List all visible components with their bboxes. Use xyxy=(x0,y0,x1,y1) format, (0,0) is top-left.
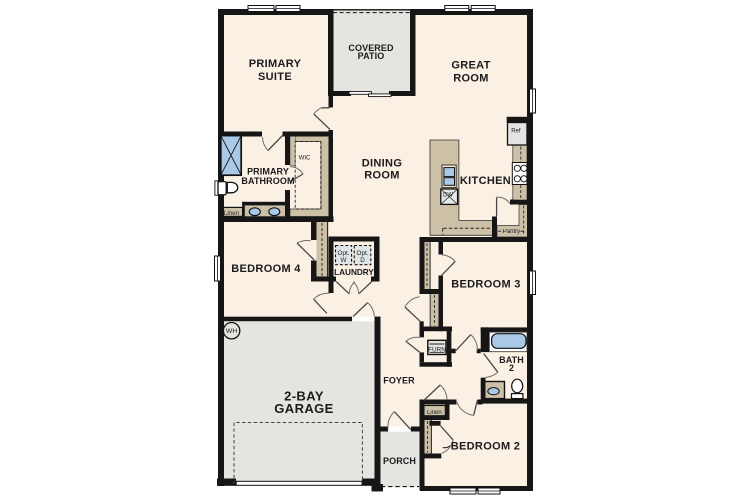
svg-text:DW: DW xyxy=(443,192,453,198)
svg-text:WH: WH xyxy=(226,328,237,335)
svg-text:BEDROOM 2: BEDROOM 2 xyxy=(451,441,521,453)
svg-text:DINING: DINING xyxy=(362,158,402,170)
svg-text:FOYER: FOYER xyxy=(383,375,415,385)
svg-text:PORCH: PORCH xyxy=(383,456,416,466)
svg-text:FURN: FURN xyxy=(428,347,446,354)
svg-text:SUITE: SUITE xyxy=(258,71,292,83)
svg-text:Pantry: Pantry xyxy=(503,229,520,235)
svg-text:ROOM: ROOM xyxy=(453,73,489,85)
svg-text:GREAT: GREAT xyxy=(451,60,490,72)
svg-text:BATHROOM: BATHROOM xyxy=(241,176,294,186)
svg-text:Linen: Linen xyxy=(427,410,442,416)
svg-text:Opt.: Opt. xyxy=(338,250,350,257)
svg-text:W: W xyxy=(341,257,347,264)
svg-text:PATIO: PATIO xyxy=(358,51,385,61)
svg-text:KITCHEN: KITCHEN xyxy=(460,175,511,187)
svg-text:Ref: Ref xyxy=(511,129,521,135)
svg-text:BEDROOM 3: BEDROOM 3 xyxy=(451,279,521,291)
svg-text:WIC: WIC xyxy=(299,156,311,162)
svg-text:ROOM: ROOM xyxy=(364,170,400,182)
svg-text:GARAGE: GARAGE xyxy=(274,401,333,416)
svg-text:LAUNDRY: LAUNDRY xyxy=(334,268,374,277)
svg-text:D: D xyxy=(360,257,365,264)
svg-text:Linen: Linen xyxy=(224,210,240,217)
svg-text:PRIMARY: PRIMARY xyxy=(249,58,302,70)
svg-text:2: 2 xyxy=(509,363,514,373)
svg-text:Opt.: Opt. xyxy=(357,250,369,257)
svg-text:BEDROOM 4: BEDROOM 4 xyxy=(231,263,301,275)
